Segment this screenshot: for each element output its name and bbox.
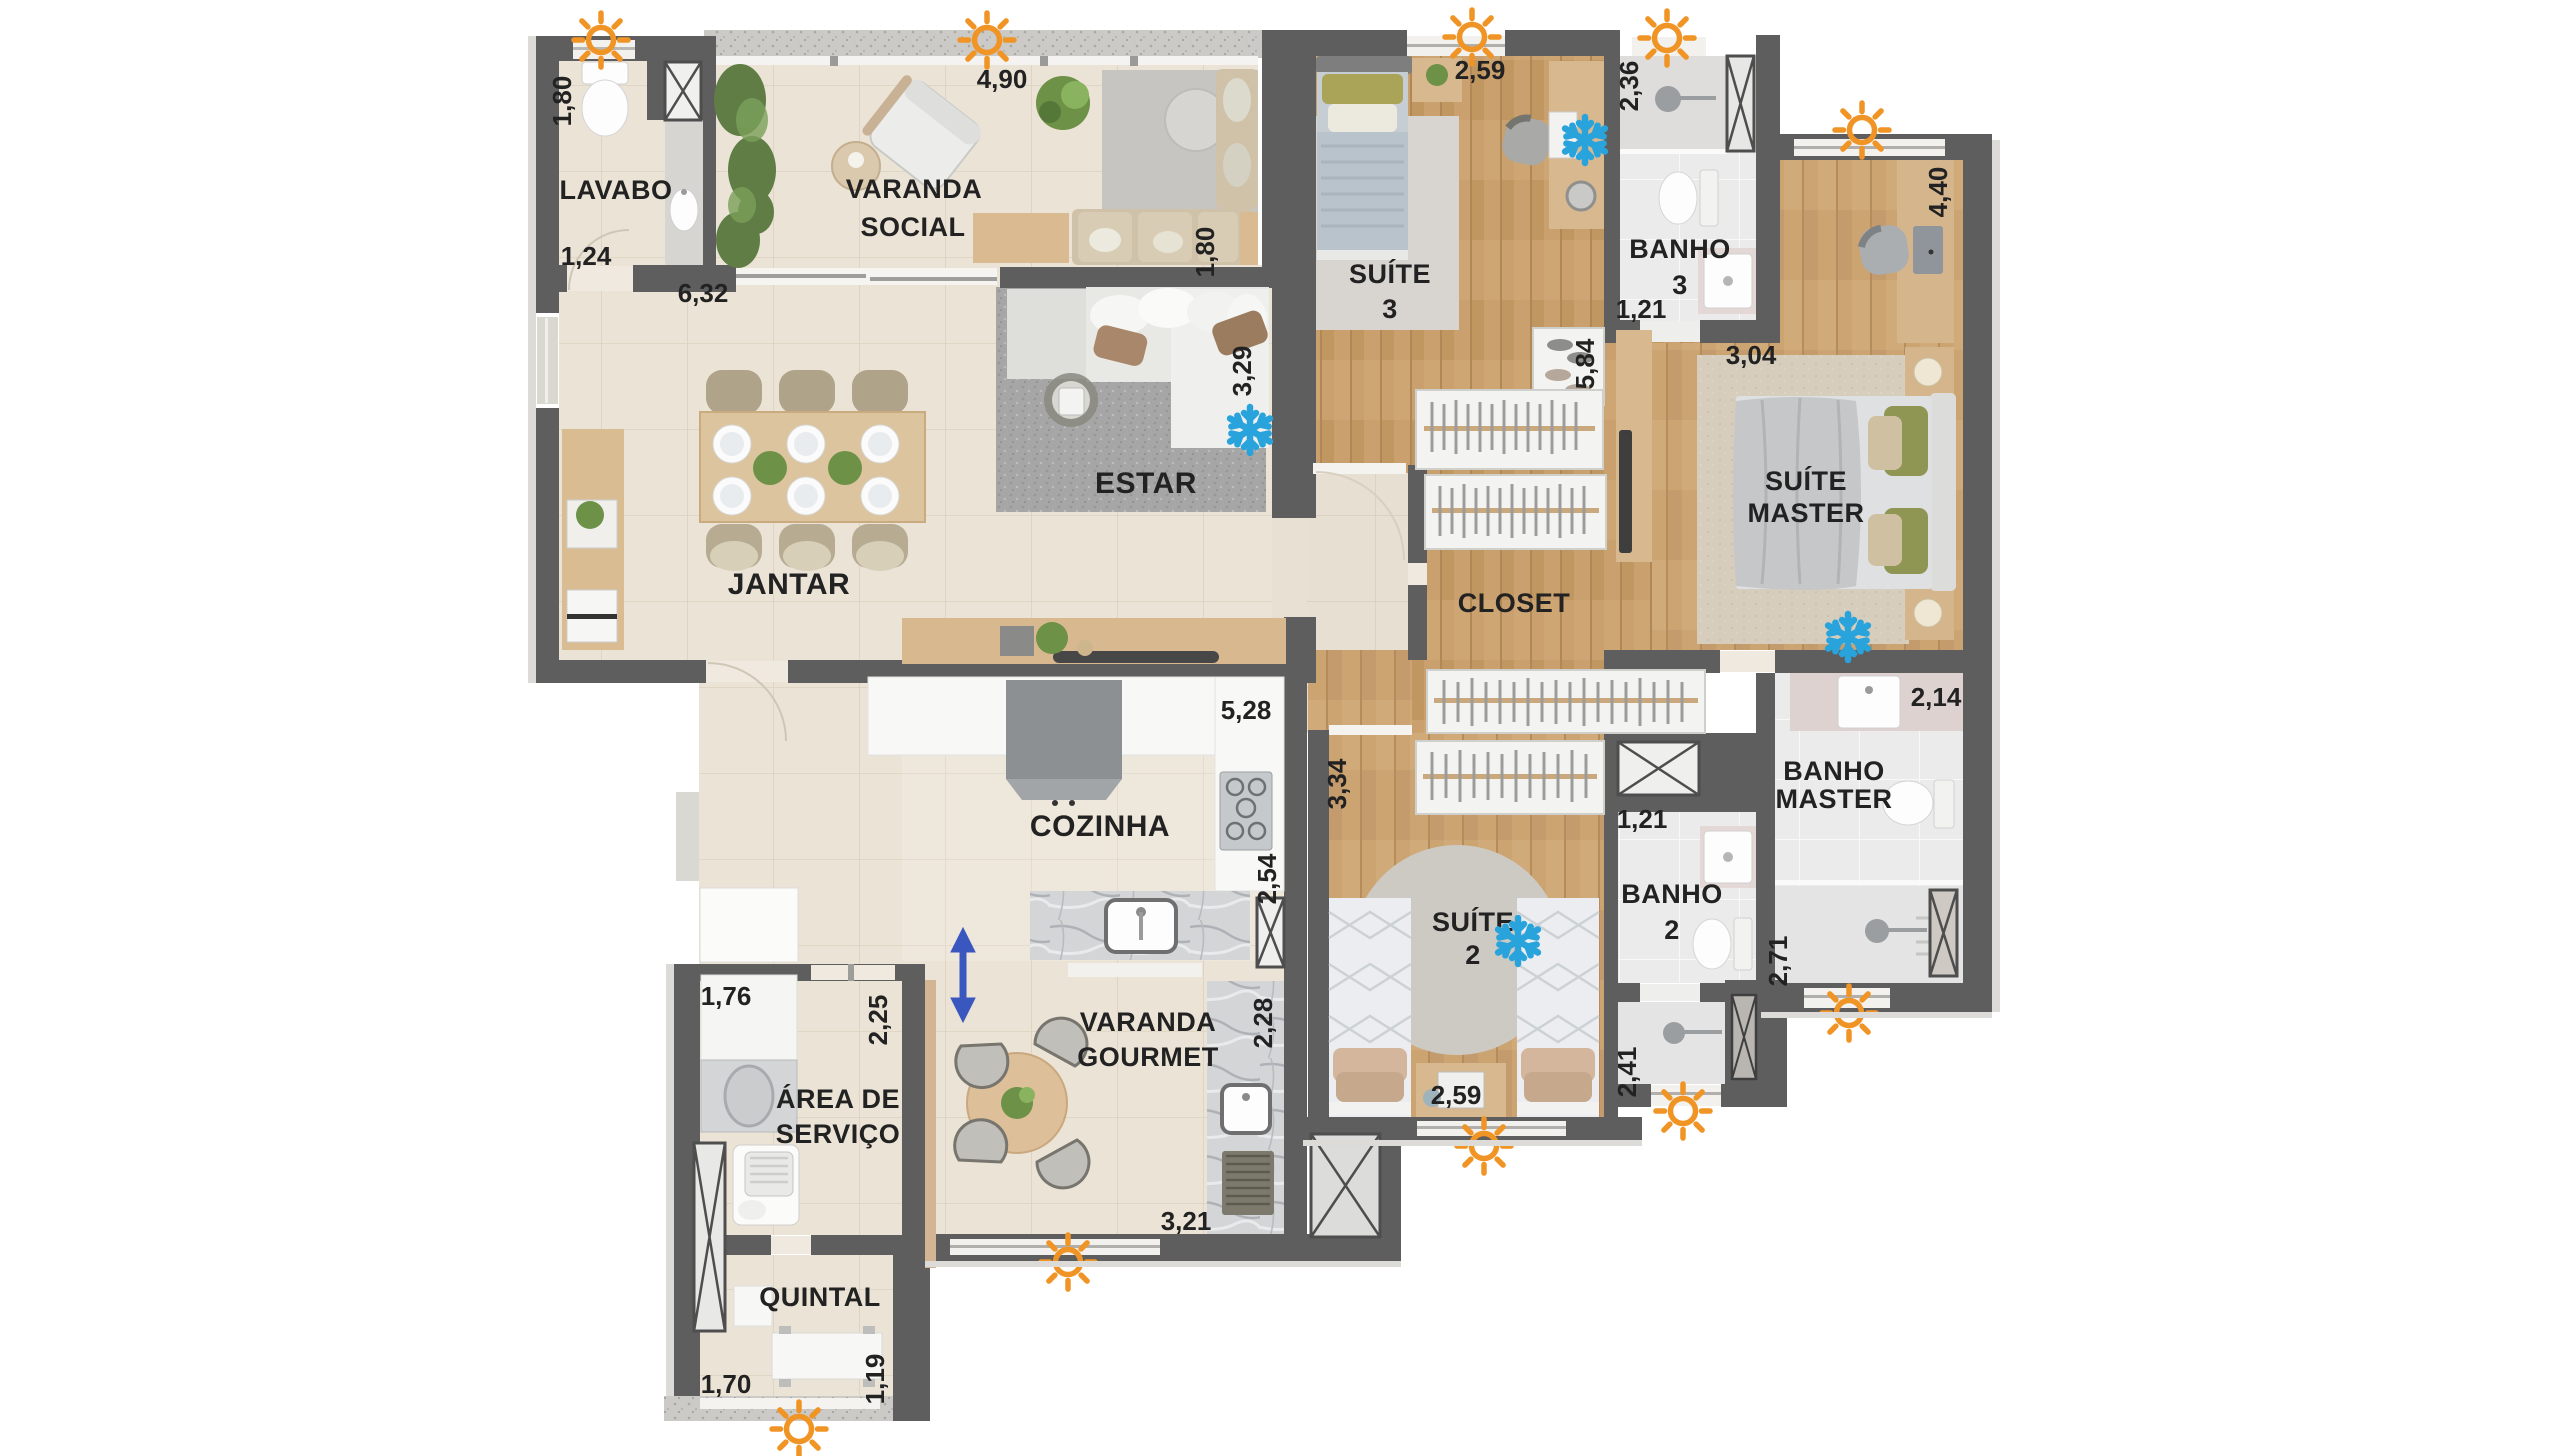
svg-text:2,59: 2,59 (1431, 1080, 1482, 1110)
svg-text:MASTER: MASTER (1776, 784, 1893, 814)
svg-text:SERVIÇO: SERVIÇO (776, 1119, 901, 1149)
svg-text:BANHO: BANHO (1783, 756, 1885, 786)
svg-text:1,70: 1,70 (701, 1369, 752, 1399)
svg-text:2,25: 2,25 (863, 995, 893, 1046)
svg-text:2: 2 (1664, 915, 1680, 945)
svg-text:COZINHA: COZINHA (1030, 810, 1170, 843)
svg-text:1,76: 1,76 (701, 981, 752, 1011)
svg-text:BANHO: BANHO (1621, 879, 1723, 909)
svg-text:2,59: 2,59 (1455, 55, 1506, 85)
svg-text:2,54: 2,54 (1252, 853, 1282, 904)
svg-text:ÁREA DE: ÁREA DE (776, 1083, 900, 1114)
svg-text:3,34: 3,34 (1322, 758, 1352, 809)
svg-text:2,71: 2,71 (1763, 936, 1793, 987)
svg-text:4,40: 4,40 (1923, 167, 1953, 218)
svg-text:3,29: 3,29 (1227, 346, 1257, 397)
svg-text:6,32: 6,32 (678, 278, 729, 308)
svg-text:1,21: 1,21 (1616, 294, 1667, 324)
svg-text:GOURMET: GOURMET (1077, 1042, 1219, 1072)
svg-text:1,80: 1,80 (1190, 227, 1220, 278)
svg-text:JANTAR: JANTAR (728, 568, 850, 601)
svg-text:2: 2 (1465, 940, 1481, 970)
svg-text:4,90: 4,90 (977, 64, 1028, 94)
svg-text:QUINTAL: QUINTAL (759, 1282, 880, 1312)
svg-text:1,24: 1,24 (561, 241, 612, 271)
svg-text:BANHO: BANHO (1629, 234, 1731, 264)
svg-text:3,04: 3,04 (1726, 340, 1777, 370)
svg-text:CLOSET: CLOSET (1458, 588, 1571, 618)
svg-text:5,28: 5,28 (1221, 695, 1272, 725)
svg-text:SUÍTE: SUÍTE (1349, 258, 1431, 289)
svg-text:SUÍTE: SUÍTE (1765, 465, 1847, 496)
svg-text:ESTAR: ESTAR (1095, 467, 1197, 500)
svg-text:LAVABO: LAVABO (560, 175, 673, 205)
svg-text:2,41: 2,41 (1612, 1047, 1642, 1098)
svg-text:1,21: 1,21 (1617, 804, 1668, 834)
svg-text:5,84: 5,84 (1570, 338, 1600, 389)
svg-text:VARANDA: VARANDA (846, 174, 983, 204)
svg-text:3: 3 (1382, 294, 1398, 324)
svg-text:SOCIAL: SOCIAL (860, 212, 965, 242)
svg-text:VARANDA: VARANDA (1080, 1007, 1217, 1037)
svg-text:1,80: 1,80 (547, 76, 577, 127)
svg-text:2,28: 2,28 (1248, 998, 1278, 1049)
svg-text:3: 3 (1672, 270, 1688, 300)
svg-text:2,36: 2,36 (1614, 61, 1644, 112)
svg-text:1,19: 1,19 (860, 1354, 890, 1405)
svg-text:3,21: 3,21 (1161, 1206, 1212, 1236)
svg-text:MASTER: MASTER (1748, 498, 1865, 528)
svg-text:2,14: 2,14 (1911, 682, 1962, 712)
